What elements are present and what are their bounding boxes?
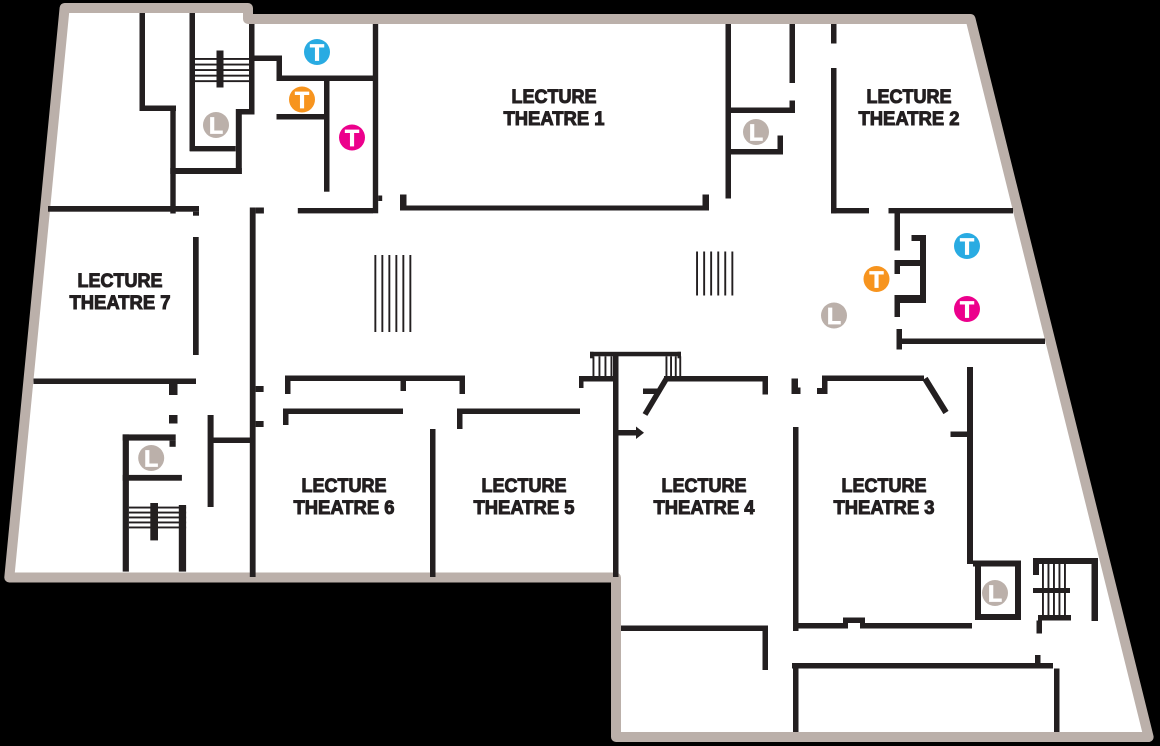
svg-text:L: L: [749, 119, 763, 145]
svg-text:LECTURE: LECTURE: [662, 475, 747, 497]
svg-text:T: T: [960, 296, 974, 322]
svg-text:T: T: [345, 125, 359, 151]
svg-text:THEATRE 1: THEATRE 1: [504, 108, 605, 130]
svg-text:LECTURE: LECTURE: [302, 475, 387, 497]
svg-text:LECTURE: LECTURE: [842, 475, 927, 497]
svg-text:T: T: [295, 87, 309, 113]
svg-text:THEATRE 2: THEATRE 2: [859, 108, 960, 130]
svg-text:THEATRE 7: THEATRE 7: [70, 292, 171, 314]
svg-text:LECTURE: LECTURE: [867, 86, 952, 108]
svg-text:LECTURE: LECTURE: [482, 475, 567, 497]
svg-text:T: T: [310, 39, 324, 65]
svg-text:THEATRE 6: THEATRE 6: [294, 497, 395, 519]
svg-text:LECTURE: LECTURE: [512, 86, 597, 108]
svg-text:T: T: [960, 233, 974, 259]
svg-text:L: L: [827, 303, 841, 329]
svg-text:L: L: [988, 580, 1002, 606]
svg-text:THEATRE 5: THEATRE 5: [474, 497, 575, 519]
svg-text:LECTURE: LECTURE: [78, 270, 163, 292]
svg-text:THEATRE 3: THEATRE 3: [834, 497, 935, 519]
svg-text:THEATRE 4: THEATRE 4: [654, 497, 755, 519]
svg-text:T: T: [869, 266, 883, 292]
svg-text:L: L: [209, 112, 223, 138]
svg-text:L: L: [144, 445, 158, 471]
